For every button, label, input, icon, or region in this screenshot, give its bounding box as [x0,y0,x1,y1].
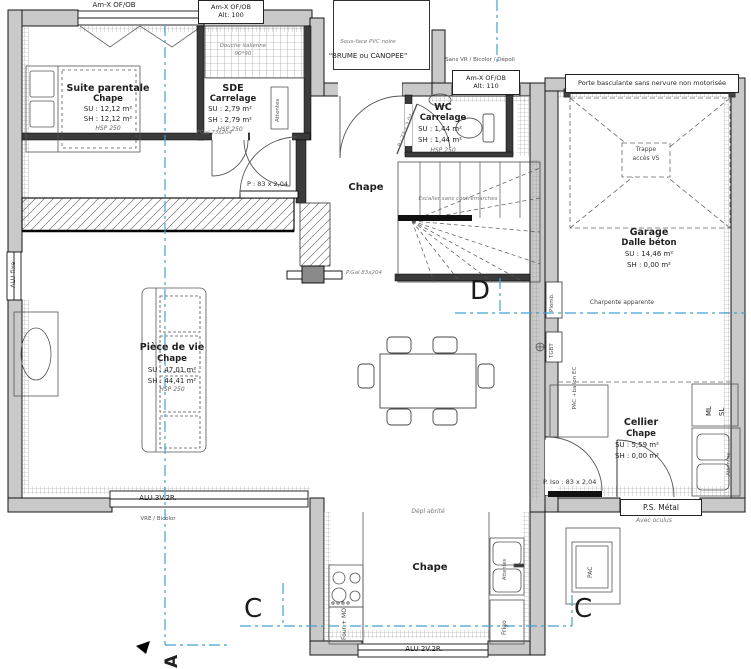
pocket-door [287,203,342,283]
cellier-ml: ML [706,406,713,416]
room-suite-name: Suite parentale [67,84,150,94]
garage-door-label: Porte basculante sans nervure non motori… [565,74,739,93]
room-living-sh: SH : 44,41 m² [148,378,196,385]
cellier-iso-door-label: P. Iso : 83 x 2,04 [543,479,596,486]
cellier-ps-door-label: P.S. Métal [620,499,702,516]
room-suite-su: SU : 12,12 m² [84,106,132,113]
entry-window-note: Sans VR / Bicolor / Dépoli [445,58,515,64]
room-suite-floor: Chape [93,95,123,104]
cellier-pac-1: PAC [572,399,578,409]
shower-floor [205,26,304,78]
window-label-alt110: Am-X OF/OB Alt: 110 [452,70,520,95]
garage-trappe-1: Trappe [636,147,656,153]
window-label-alt100: Am-X OF/OB Alt: 100 [198,0,264,24]
section-mark-c-right: C [574,596,592,623]
room-garage-name: Garage [630,228,669,238]
room-wc-floor: Carrelage [420,114,467,123]
room-garage-floor: Dalle béton [621,239,676,248]
alt110-line2: Alt: 110 [453,83,519,91]
window-label-top: Am-X OF/OB [92,2,135,9]
cellier-attentes: Attentes [727,453,733,476]
room-suite-sh: SH : 12,12 m² [84,116,132,123]
window-kitchen-bottom-label: ALU 2V.2R. [405,646,443,653]
room-cellier-floor: Chape [626,430,656,439]
room-sde-floor: Carrelage [210,95,257,104]
cellier-sl: SL [719,408,726,416]
window-living-bottom-note: VRE / Bicolor [140,517,175,523]
sde-door-label: P.Gal 73x204 [196,131,232,137]
room-wc-su: SU : 1,44 m² [418,126,462,133]
room-sde-name: SDE [222,84,243,94]
section-a-arrow [136,641,150,654]
room-cellier-name: Cellier [624,418,658,428]
sde-attentes: Attentes [276,99,282,122]
cellier-equipment [536,282,740,496]
garage-charpente-note: Charpente apparente [590,300,654,306]
window-left-fixed-label: ALU fixe [10,262,17,288]
sde-shower-note: Douche italienne [220,44,267,50]
room-sde-su: SU : 2,79 m² [208,106,252,113]
kitchen-floor-label: Chape [412,563,447,574]
hall-door-label: P : 83 x 2,04 [247,181,288,188]
kitchen-sink-attentes: Attentes [503,559,508,580]
room-garage-su: SU : 14,46 m² [625,251,673,258]
kitchen-note: Dépl abrité [411,509,444,515]
kitchen-oven-label: Four + MO [342,608,348,640]
garage-plomb: Plomb. [550,293,556,312]
room-wc-sh: SH : 1,44 m² [418,137,462,144]
room-wc-name: WC [434,103,451,113]
section-mark-a: A [164,655,182,668]
cellier-pac-label: PAC +ballon EC [573,348,579,428]
pocket-door-label: P.Gal 83x204 [346,271,382,277]
room-cellier-su: SU : 5,59 m² [615,442,659,449]
ps-metal-text: P.S. Métal [621,503,701,512]
exterior-pac-label: PAC [588,567,594,578]
garage-trappe-2: accès VS [633,156,660,162]
stairs [398,162,540,282]
room-suite-hsp: HSP 250 [95,126,120,132]
dining-table [358,337,494,425]
room-cellier-sh: SH : 0,00 m² [615,453,659,460]
alt100-line2: Alt: 100 [199,12,263,20]
room-sde-sh: SH : 2,79 m² [208,117,252,124]
section-mark-c-left: C [244,596,262,623]
room-wc-hsp: HSP 250 [430,148,455,154]
room-living-hsp: HSP 250 [159,387,184,393]
section-mark-d: D [470,278,490,305]
porch-canopy-outline [333,0,430,70]
hall-floor-label: Chape [348,183,383,194]
cellier-pac-2: +ballon EC [572,367,578,397]
garage-door-text: Porte basculante sans nervure non motori… [566,80,738,88]
kitchen-fixtures [329,512,524,644]
sde-shower-dim: 90*90 [235,52,252,58]
wardrobe-strip [22,198,294,231]
garage-tgbt: TGBT [550,343,556,358]
cellier-ps-door-note: Avec oculus [636,518,672,524]
room-living-floor: Chape [157,355,187,364]
room-living-name: Pièce de vie [140,343,205,353]
room-living-su: SU : 47,01 m² [148,367,196,374]
kitchen-fridge-label: Frigo [502,620,508,635]
stairs-note: Escalier sans contremarches [419,197,498,203]
room-garage-sh: SH : 0,00 m² [627,262,671,269]
window-living-bottom-label: ALU 3V.2R. [139,495,177,502]
floor-plan: Am-X OF/OB Am-X OF/OB Alt: 100 Sous-face… [0,0,751,669]
